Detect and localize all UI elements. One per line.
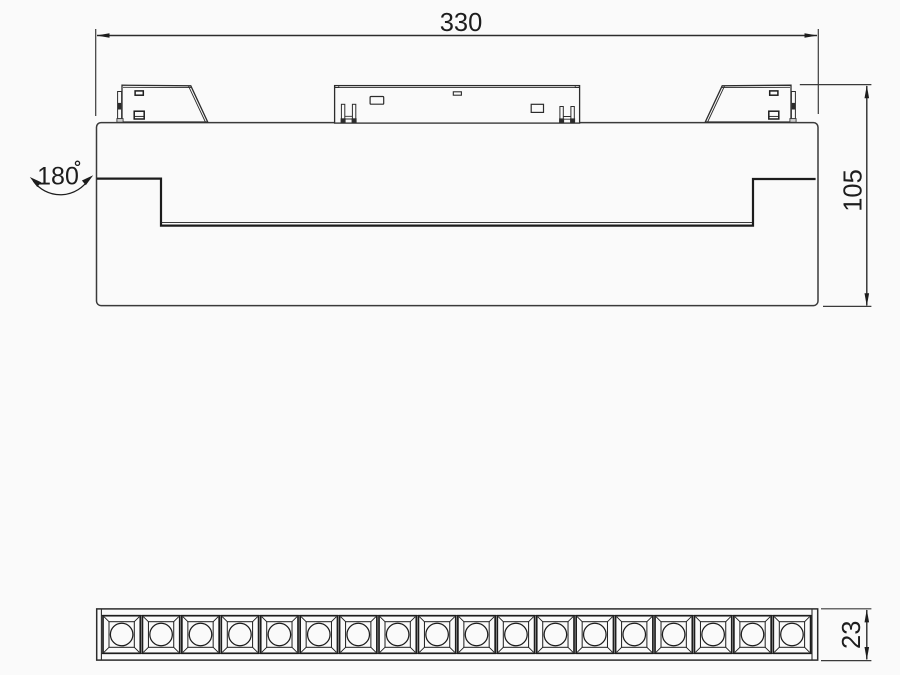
svg-text:330: 330 xyxy=(440,9,483,37)
svg-text:105: 105 xyxy=(840,169,868,212)
svg-text:23: 23 xyxy=(838,621,866,649)
svg-text:180: 180 xyxy=(37,163,79,191)
